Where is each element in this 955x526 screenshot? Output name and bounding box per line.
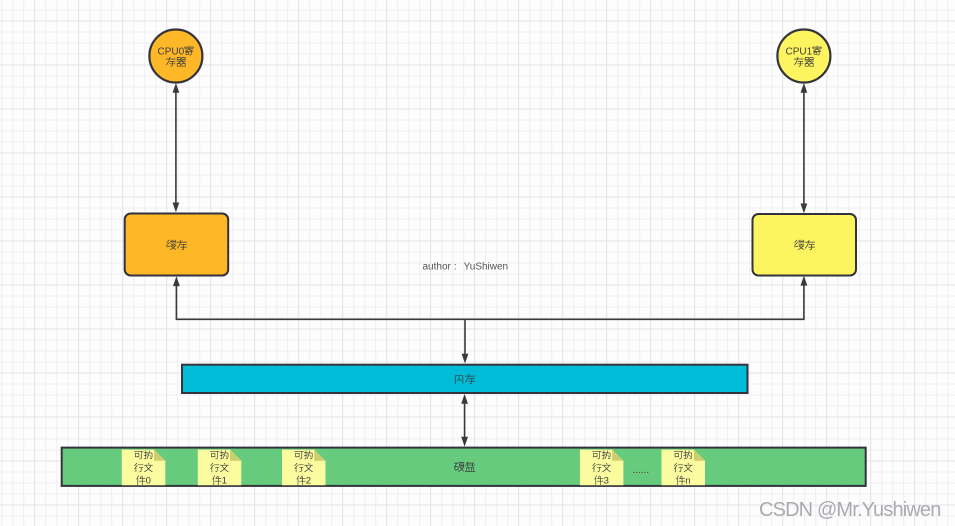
svg-text:CSDN @Mr.Yushiwen: CSDN @Mr.Yushiwen: [759, 499, 940, 521]
svg-text:n: n: [685, 476, 690, 487]
svg-text:0: 0: [146, 476, 151, 487]
svg-text:3: 3: [604, 476, 609, 487]
svg-text:CPU1: CPU1: [786, 46, 813, 57]
svg-text:CPU0: CPU0: [158, 46, 185, 57]
svg-text:......: ......: [633, 465, 650, 476]
svg-text:author:YuShiwen: author:YuShiwen: [423, 261, 509, 272]
svg-text:2: 2: [306, 476, 311, 487]
svg-text:1: 1: [222, 476, 227, 487]
